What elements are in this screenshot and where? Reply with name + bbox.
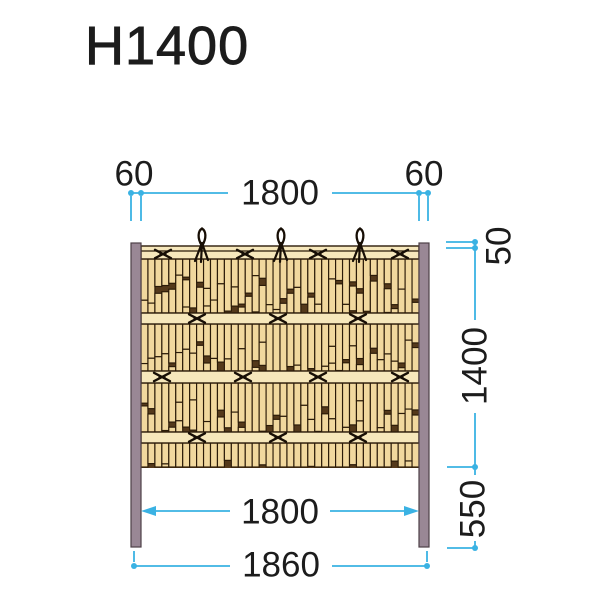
bamboo-slat: [398, 443, 405, 467]
bamboo-slat: [294, 324, 301, 365]
bamboo-slat: [245, 259, 252, 293]
bamboo-slat: [231, 443, 238, 467]
bamboo-slat: [259, 383, 266, 431]
bamboo-slat: [266, 383, 273, 426]
bamboo-slat: [259, 259, 266, 278]
bamboo-slat: [377, 259, 384, 313]
bamboo-slat: [356, 421, 363, 432]
dim-label-inner-span: 1800: [241, 493, 319, 532]
bamboo-slat: [211, 259, 218, 300]
bamboo-slat: [315, 259, 322, 304]
bamboo-slat: [204, 288, 211, 306]
bamboo-slat: [259, 285, 266, 313]
bamboo-slat: [294, 259, 301, 287]
dim-label-ground-clearance: 550: [454, 480, 493, 538]
bamboo-slat: [211, 358, 218, 371]
bamboo-slat: [231, 287, 238, 306]
diagram-canvas: H1400 60 1800 60 50 1400 550: [0, 0, 600, 600]
bamboo-slat: [190, 443, 197, 467]
bamboo-slat: [211, 300, 218, 313]
bamboo-slat: [329, 324, 336, 346]
bamboo-slat: [162, 324, 169, 354]
bamboo-slat: [197, 324, 204, 342]
bamboo-slat: [301, 383, 308, 405]
bamboo-slat: [412, 259, 419, 299]
bamboo-slat: [217, 284, 224, 313]
bamboo-slat: [204, 324, 211, 356]
bamboo-slat: [141, 383, 148, 403]
bamboo-slat: [356, 324, 363, 359]
bamboo-slat: [162, 259, 169, 285]
bamboo-slat: [356, 365, 363, 371]
bamboo-slat: [336, 324, 343, 371]
bamboo-slat: [148, 414, 155, 432]
bamboo-slat: [190, 324, 197, 353]
bamboo-slat: [197, 443, 204, 467]
bamboo-slat: [217, 417, 224, 432]
bamboo-slat: [266, 443, 273, 467]
bamboo-slat: [322, 324, 329, 366]
bamboo-slat: [169, 427, 176, 432]
bamboo-slat: [217, 383, 224, 410]
dimension-top: 60 1800 60: [115, 155, 444, 222]
bamboo-slat: [363, 443, 370, 467]
bamboo-slat: [329, 259, 336, 279]
dim-label-panel-height: 1400: [456, 327, 495, 405]
bamboo-slat: [322, 259, 329, 313]
bamboo-slat: [141, 324, 148, 364]
bamboo-slat: [329, 363, 336, 371]
bamboo-slat: [259, 342, 266, 365]
bamboo-slat: [308, 443, 315, 466]
bamboo-slat: [266, 259, 273, 305]
bamboo-slat: [405, 443, 412, 461]
bamboo-slat: [322, 366, 329, 371]
rail: [141, 371, 419, 383]
bamboo-slat: [245, 296, 252, 313]
bamboo-slat: [183, 443, 190, 467]
bamboo-slat: [350, 346, 357, 371]
bamboo-slat: [350, 286, 357, 311]
bamboo-slat: [280, 303, 287, 313]
bamboo-slat: [238, 383, 245, 422]
bamboo-slat: [231, 324, 238, 371]
bamboo-slat: [384, 354, 391, 371]
bamboo-slat: [405, 259, 412, 313]
dim-label-top-span: 1800: [241, 174, 319, 213]
arrow-left-icon: [141, 506, 156, 516]
bamboo-slat: [287, 443, 294, 467]
bamboo-slat: [315, 324, 322, 371]
bamboo-slat: [377, 383, 384, 428]
bamboo-slat: [224, 259, 231, 311]
bamboo-slat: [363, 383, 370, 432]
bamboo-slat: [197, 383, 204, 432]
bamboo-slat: [343, 304, 350, 313]
bamboo-slat: [148, 324, 155, 358]
bamboo-slat: [370, 353, 377, 371]
dimension-bottom: 1800 1860: [131, 493, 430, 585]
bamboo-slat: [315, 304, 322, 313]
bamboo-slat: [183, 259, 190, 277]
bamboo-slat: [329, 346, 336, 363]
bamboo-slat: [148, 383, 155, 409]
fence-dimension-diagram: H1400 60 1800 60 50 1400 550: [0, 0, 600, 600]
bamboo-slat: [336, 383, 343, 432]
bamboo-slat: [280, 259, 287, 299]
arrow-right-icon: [404, 506, 419, 516]
bamboo-slat: [391, 259, 398, 305]
bamboo-slat: [398, 324, 405, 363]
bamboo-slat: [266, 324, 273, 371]
bamboo-slat: [259, 324, 266, 342]
bamboo-slat: [190, 383, 197, 400]
bamboo-slat: [162, 464, 169, 467]
left-post: [131, 243, 141, 547]
bamboo-slat: [224, 359, 231, 371]
bamboo-slat: [370, 383, 377, 432]
bamboo-slat: [211, 383, 218, 432]
bamboo-slat: [176, 402, 183, 421]
bamboo-slat: [370, 259, 377, 275]
bamboo-slat: [266, 305, 273, 313]
bamboo-slat: [217, 324, 224, 362]
bamboo-slat: [363, 259, 370, 311]
bamboo-slat: [343, 443, 350, 467]
bamboo-slat: [190, 353, 197, 371]
bamboo-slat: [343, 363, 350, 371]
bamboo-slat: [301, 405, 308, 432]
bamboo-slat: [343, 324, 350, 360]
bamboo-slat: [224, 383, 231, 428]
bamboo-slat: [176, 383, 183, 402]
bamboo-slat: [356, 259, 363, 289]
bamboo-slat: [294, 365, 301, 371]
bamboo-slat: [162, 443, 169, 464]
bamboo-slat: [343, 383, 350, 427]
bamboo-slat: [329, 279, 336, 313]
bamboo-slat: [183, 280, 190, 307]
bamboo-slat: [224, 324, 231, 359]
bamboo-slat: [350, 324, 357, 346]
bamboo-slat: [356, 293, 363, 313]
bamboo-slat: [204, 443, 211, 467]
bamboo-slat: [377, 324, 384, 360]
bamboo-slat: [155, 324, 162, 357]
bamboo-slat: [308, 383, 315, 419]
bamboo-slat: [155, 383, 162, 432]
bamboo-slat: [329, 383, 336, 419]
bamboo-slat: [155, 293, 162, 313]
bamboo-slat: [176, 324, 183, 353]
bamboo-slat: [398, 413, 405, 432]
bamboo-slat: [252, 324, 259, 361]
bamboo-slat: [169, 443, 176, 467]
bamboo-slat: [377, 360, 384, 371]
bamboo-slat: [169, 324, 176, 363]
bamboo-slat: [155, 259, 162, 286]
bamboo-slat: [273, 419, 280, 432]
bamboo-slat: [169, 259, 176, 283]
bamboo-slat: [329, 443, 336, 467]
bamboo-slat: [252, 276, 259, 312]
bamboo-slat: [405, 383, 412, 409]
bamboo-slat: [141, 259, 148, 300]
bamboo-slat: [141, 300, 148, 313]
bamboo-slat: [162, 292, 169, 313]
bamboo-slat: [356, 443, 363, 467]
bamboo-slat: [273, 383, 280, 415]
bamboo-slat: [412, 348, 419, 371]
bamboo-slat: [350, 443, 357, 465]
bamboo-slat: [398, 289, 405, 313]
right-post: [419, 243, 429, 547]
bamboo-slat: [252, 259, 259, 276]
bamboo-slat: [294, 383, 301, 425]
bamboo-slat: [412, 415, 419, 432]
bamboo-slat: [211, 324, 218, 358]
bamboo-slat: [308, 297, 315, 313]
bamboo-slat: [280, 383, 287, 416]
bamboo-slat: [148, 358, 155, 371]
bamboo-slat: [336, 443, 343, 467]
bamboo-slat: [204, 422, 211, 432]
bamboo-slat: [356, 401, 363, 421]
bamboo-slat: [329, 419, 336, 432]
bamboo-slat: [315, 443, 322, 467]
bamboo-slat: [322, 414, 329, 432]
bamboo-slat: [405, 324, 412, 340]
bamboo-slat: [197, 345, 204, 371]
bamboo-slat: [356, 383, 363, 401]
bamboo-slat: [308, 259, 315, 293]
bamboo-slat: [370, 443, 377, 467]
bamboo-slat: [391, 383, 398, 425]
bamboo-slat: [412, 383, 419, 410]
bamboo-slat: [204, 383, 211, 422]
bamboo-slat: [287, 293, 294, 313]
bamboo-slat: [273, 259, 280, 310]
bamboo-slat: [412, 324, 419, 343]
bamboo-slat: [384, 443, 391, 467]
dim-label-post-width-left: 60: [115, 155, 154, 194]
bamboo-slat: [280, 324, 287, 371]
bamboo-slat: [204, 363, 211, 371]
bamboo-slat: [231, 383, 238, 412]
bamboo-slat: [155, 443, 162, 467]
bamboo-slat: [148, 303, 155, 313]
bamboo-slat: [141, 364, 148, 371]
bamboo-slat: [141, 406, 148, 432]
bamboo-slat: [398, 383, 405, 413]
bamboo-slat: [252, 443, 259, 467]
bamboo-slat: [238, 443, 245, 467]
bamboo-slat: [148, 259, 155, 303]
bamboo-slat: [238, 349, 245, 371]
bamboo-slat: [231, 259, 238, 287]
bamboo-slat: [301, 324, 308, 371]
bamboo-slat: [336, 284, 343, 313]
bamboo-slat: [384, 383, 391, 410]
page-title: H1400: [85, 16, 249, 76]
bamboo-slat: [322, 443, 329, 467]
bamboo-slat: [169, 289, 176, 313]
bamboo-slat: [350, 383, 357, 425]
bamboo-slat: [301, 443, 308, 467]
bamboo-slat: [287, 383, 294, 432]
bamboo-slat: [183, 324, 190, 349]
bamboo-slat: [259, 443, 266, 465]
bamboo-slat: [384, 414, 391, 432]
bamboo-slat: [412, 302, 419, 313]
bamboo-slat: [273, 324, 280, 371]
bamboo-slat: [245, 383, 252, 432]
bamboo-slat: [350, 259, 357, 282]
bamboo-slat: [252, 383, 259, 432]
bamboo-slat: [169, 383, 176, 422]
bamboo-slat: [245, 443, 252, 467]
bamboo-slat: [197, 287, 204, 313]
dim-label-overall-width: 1860: [242, 546, 320, 585]
bamboo-slat: [370, 281, 377, 313]
bamboo-slat: [238, 324, 245, 349]
bamboo-slat: [280, 443, 287, 467]
bamboo-slat: [405, 409, 412, 432]
bamboo-slat: [238, 307, 245, 313]
bamboo-slat: [315, 383, 322, 431]
bamboo-slat: [176, 443, 183, 467]
dimension-right: 50 1400 550: [446, 227, 519, 551]
bamboo-slat: [141, 443, 148, 467]
bamboo-slat: [231, 412, 238, 432]
dim-label-top-offset: 50: [480, 227, 519, 266]
bamboo-slat: [294, 287, 301, 313]
bamboo-slat: [217, 259, 224, 284]
bamboo-slat: [308, 324, 315, 369]
bamboo-slat: [322, 383, 329, 407]
bamboo-slat: [287, 324, 294, 367]
bamboo-slat: [280, 416, 287, 432]
bamboo-slat: [176, 259, 183, 275]
bamboo-slat: [176, 353, 183, 371]
bamboo-slat: [405, 461, 412, 467]
bamboo-slat: [245, 324, 252, 371]
bamboo-slat: [238, 259, 245, 304]
bamboo-slat: [211, 443, 218, 467]
bamboo-slat: [183, 307, 190, 313]
bamboo-slat: [384, 324, 391, 354]
bamboo-slat: [294, 443, 301, 467]
bamboo-slat: [301, 259, 308, 304]
bamboo-slat: [162, 354, 169, 371]
bamboo-slat: [384, 259, 391, 284]
bamboo-slat: [398, 259, 405, 289]
bamboo-slat: [391, 361, 398, 371]
bamboo-slat: [287, 259, 294, 289]
bamboo-slat: [412, 443, 419, 467]
bamboo-slat: [273, 443, 280, 467]
bamboo-slat: [363, 324, 370, 371]
bamboo-slat: [343, 259, 350, 304]
bamboo-slat: [391, 324, 398, 361]
bamboo-slat: [155, 357, 162, 371]
bamboo-slat: [148, 443, 155, 464]
bamboo-slat: [183, 383, 190, 427]
bamboo-slat: [176, 421, 183, 432]
bamboo-slat: [308, 419, 315, 432]
dim-label-post-width-right: 60: [405, 155, 444, 194]
bamboo-slat: [377, 443, 384, 467]
bamboo-slat: [190, 400, 197, 430]
bamboo-slat: [190, 259, 197, 308]
bamboo-slat: [176, 275, 183, 313]
bamboo-slat: [384, 289, 391, 313]
bamboo-slat: [217, 443, 224, 467]
bamboo-slat: [162, 383, 169, 431]
bamboo-slat: [336, 259, 343, 280]
bamboo-slat: [405, 340, 412, 371]
bamboo-slat: [370, 324, 377, 348]
bamboo-slat: [391, 443, 398, 461]
bamboo-slat: [204, 306, 211, 313]
bamboo-slat: [183, 349, 190, 371]
bamboo-slat: [224, 443, 231, 460]
bamboo-slat: [204, 259, 211, 288]
